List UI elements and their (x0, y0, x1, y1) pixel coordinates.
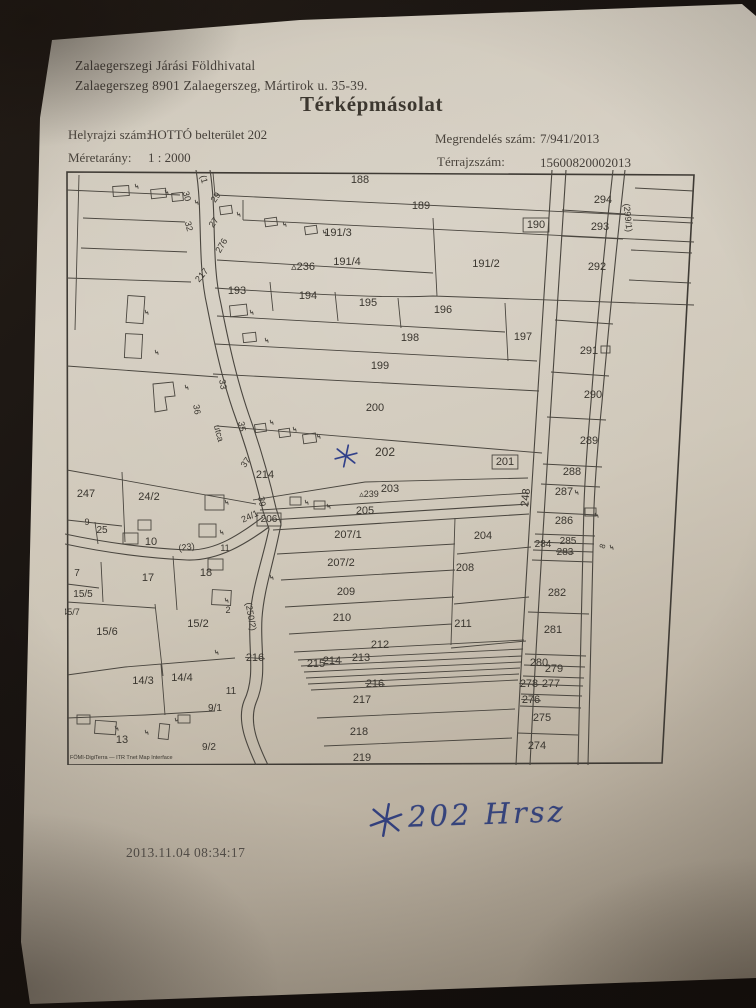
map-label: 275 (533, 712, 551, 724)
map-label: 206 (261, 514, 278, 525)
map-label: 217 (353, 694, 371, 706)
map-label: 27 (207, 215, 221, 229)
map-label: 219 (353, 752, 371, 764)
map-label: 276 (213, 236, 229, 254)
map-label: 15/6 (96, 626, 117, 638)
map-label: 18 (200, 567, 212, 579)
map-label: 191/3 (324, 227, 352, 239)
helyrajzi-value: HOTTÓ belterület 202 (148, 127, 267, 143)
map-label: (299/1) (622, 203, 635, 232)
photographed-document: Zalaegerszegi Járási Földhivatal Zalaege… (0, 0, 756, 1008)
map-label: 9/1 (208, 703, 222, 714)
map-label: 218 (350, 726, 368, 738)
helyrajzi-label: Helyrajzi szám: (68, 127, 150, 143)
map-label: 24/2 (138, 491, 159, 503)
map-label: 7 (74, 568, 80, 579)
map-label: 209 (337, 586, 355, 598)
handwritten-star-on-202 (334, 443, 358, 469)
megrendeles-value: 7/941/2013 (540, 131, 599, 147)
map-label: 279 (545, 663, 563, 675)
terrajz-label: Térrajzszám: (437, 154, 505, 170)
map-label: 9 (84, 517, 89, 527)
meretarany-value: 1 : 2000 (148, 150, 191, 166)
office-name: Zalaegerszegi Járási Földhivatal (75, 56, 368, 76)
handwritten-star-icon (366, 800, 406, 840)
map-label: (1 (198, 174, 210, 184)
map-label: 205 (356, 505, 374, 517)
map-label: 210 (333, 612, 351, 624)
map-label: 45/7 (65, 607, 80, 617)
cadastral-map: 188189190191/3191/4191/2▵236294293292193… (65, 170, 695, 765)
issuing-office: Zalaegerszegi Járási Földhivatal Zalaege… (75, 56, 368, 95)
map-label: 11 (226, 686, 237, 697)
map-label: 37 (239, 455, 253, 469)
map-label: 14/4 (171, 672, 192, 684)
map-label: 188 (351, 174, 369, 186)
map-label: 287 (555, 486, 573, 498)
handwritten-note: 202 Hrsz (407, 794, 566, 833)
map-label: 8 (598, 542, 608, 550)
map-label: 25 (96, 525, 108, 536)
map-label: 213 (352, 652, 370, 664)
map-label: 288 (563, 466, 581, 478)
map-label: 195 (359, 297, 377, 309)
map-label: 11 (220, 543, 229, 553)
map-label: 286 (555, 515, 573, 527)
map-credit: FÖMI-DigiTerra — ITR Tnet Map Interface (70, 754, 173, 761)
map-label: 15/2 (187, 618, 208, 630)
map-label: 215 (307, 658, 325, 670)
timestamp: 2013.11.04 08:34:17 (126, 845, 245, 861)
map-label: 35 (236, 421, 248, 433)
map-label: 191/2 (472, 258, 500, 270)
map-label: 200 (366, 402, 384, 414)
map-label: 282 (548, 587, 566, 599)
map-label: 194 (299, 290, 317, 302)
map-labels: 188189190191/3191/4191/2▵236294293292193… (65, 174, 634, 764)
map-label: 289 (580, 435, 598, 447)
map-label: 207/2 (327, 557, 355, 569)
map-label: 201 (496, 456, 514, 468)
map-label: 294 (594, 194, 612, 206)
terrajz-value: 15600820002013 (540, 155, 631, 171)
map-label: 290 (584, 389, 602, 401)
page-title: Térképmásolat (300, 92, 443, 117)
map-parcel-lines (67, 173, 694, 746)
map-label: 204 (474, 530, 492, 542)
map-label: 293 (591, 221, 609, 233)
megrendeles-label: Megrendelés szám: (435, 131, 536, 147)
map-label: 217 (193, 266, 210, 284)
map-label: 29 (209, 190, 223, 204)
map-label: 17 (142, 572, 154, 584)
map-label: 285 (560, 536, 577, 547)
map-label: 39 (256, 496, 268, 508)
map-label: 207/1 (334, 529, 362, 541)
map-label: 36 (191, 404, 203, 416)
map-label: 193 (228, 285, 246, 297)
map-label: 198 (401, 332, 419, 344)
map-label: 199 (371, 360, 389, 372)
map-label: 190 (527, 219, 545, 231)
map-label: 211 (454, 618, 472, 630)
map-label: 9/2 (202, 742, 216, 753)
map-label: 196 (434, 304, 452, 316)
map-label: 13 (116, 734, 128, 746)
map-label: 212 (371, 639, 389, 651)
map-label: ▵239 (359, 489, 379, 499)
map-label: 197 (514, 331, 532, 343)
map-label: 208 (456, 562, 474, 574)
map-label: 248 (519, 488, 533, 508)
map-label: (250/2) (244, 602, 259, 632)
map-label: 281 (544, 624, 562, 636)
map-label: 274 (528, 740, 546, 752)
map-label: 202 (375, 445, 395, 459)
map-label: 10 (145, 536, 157, 548)
map-label: ▵236 (291, 261, 315, 273)
map-label: 191/4 (333, 256, 361, 268)
map-label: (23) (178, 541, 195, 553)
meretarany-label: Méretarány: (68, 150, 132, 166)
map-label: 214 (256, 469, 274, 481)
map-label: 247 (77, 488, 95, 500)
map-label: 14/3 (132, 675, 153, 687)
map-label: 32 (183, 220, 195, 232)
map-label: 15/5 (73, 589, 93, 600)
map-label: 292 (588, 261, 606, 273)
paper-sheet: Zalaegerszegi Járási Földhivatal Zalaege… (0, 0, 756, 1008)
map-label: 284 (535, 539, 552, 550)
map-label: 203 (381, 483, 399, 495)
map-label: 277 (542, 678, 560, 690)
map-label: 33 (217, 379, 229, 391)
map-label: 189 (412, 200, 430, 212)
map-label: 291 (580, 345, 598, 357)
map-label: 2 (225, 605, 230, 615)
